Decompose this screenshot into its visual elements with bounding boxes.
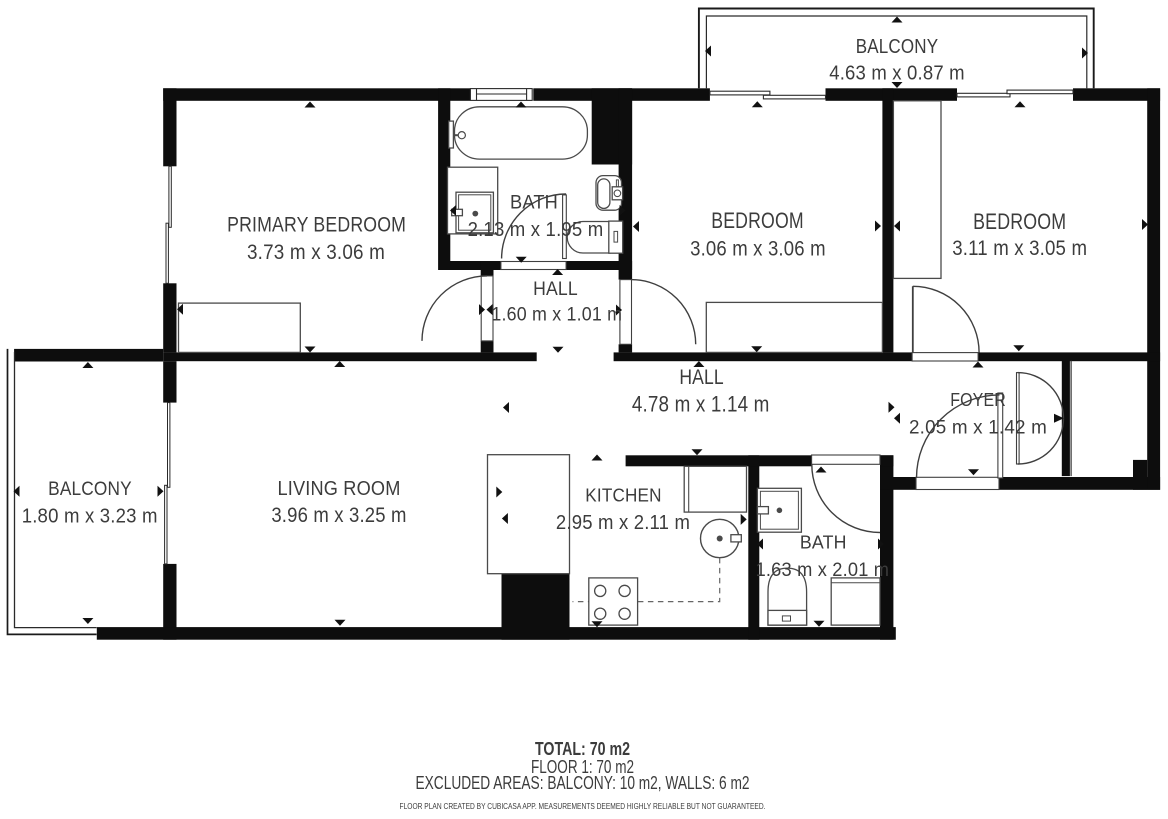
svg-text:LIVING ROOM: LIVING ROOM: [277, 477, 400, 500]
svg-text:4.63 m x 0.87 m: 4.63 m x 0.87 m: [829, 63, 965, 85]
svg-text:1.63 m x 2.01 m: 1.63 m x 2.01 m: [756, 559, 890, 581]
svg-text:2.13 m x 1.95 m: 2.13 m x 1.95 m: [468, 218, 604, 241]
svg-text:3.73 m x 3.06 m: 3.73 m x 3.06 m: [247, 241, 385, 264]
svg-text:3.96 m x 3.25 m: 3.96 m x 3.25 m: [271, 502, 406, 527]
svg-text:4.78 m x 1.14 m: 4.78 m x 1.14 m: [632, 392, 770, 417]
svg-text:FLOOR PLAN CREATED BY CUBICASA: FLOOR PLAN CREATED BY CUBICASA APP. MEAS…: [400, 801, 766, 811]
svg-text:2.05 m x 1.42 m: 2.05 m x 1.42 m: [909, 417, 1047, 439]
svg-text:BEDROOM: BEDROOM: [711, 208, 804, 233]
svg-text:HALL: HALL: [533, 279, 578, 300]
svg-text:3.11 m x 3.05 m: 3.11 m x 3.05 m: [952, 235, 1087, 260]
svg-text:BEDROOM: BEDROOM: [973, 209, 1066, 234]
svg-text:1.60 m x 1.01 m: 1.60 m x 1.01 m: [491, 304, 622, 325]
svg-text:1.80 m x 3.23 m: 1.80 m x 3.23 m: [22, 506, 158, 528]
svg-text:BATH: BATH: [800, 532, 847, 553]
svg-text:PRIMARY BEDROOM: PRIMARY BEDROOM: [227, 213, 406, 237]
svg-text:TOTAL: 70 m2: TOTAL: 70 m2: [535, 739, 630, 759]
svg-text:FOYER: FOYER: [950, 389, 1006, 410]
svg-text:HALL: HALL: [679, 366, 724, 389]
svg-text:KITCHEN: KITCHEN: [585, 484, 661, 505]
svg-text:EXCLUDED AREAS: BALCONY: 10 m2: EXCLUDED AREAS: BALCONY: 10 m2, WALLS: 6…: [416, 773, 750, 793]
svg-text:3.06 m x 3.06 m: 3.06 m x 3.06 m: [690, 237, 826, 261]
svg-text:2.95 m x 2.11 m: 2.95 m x 2.11 m: [556, 511, 690, 534]
svg-text:BALCONY: BALCONY: [856, 36, 939, 58]
svg-text:BATH: BATH: [510, 192, 558, 214]
svg-text:BALCONY: BALCONY: [48, 479, 132, 500]
